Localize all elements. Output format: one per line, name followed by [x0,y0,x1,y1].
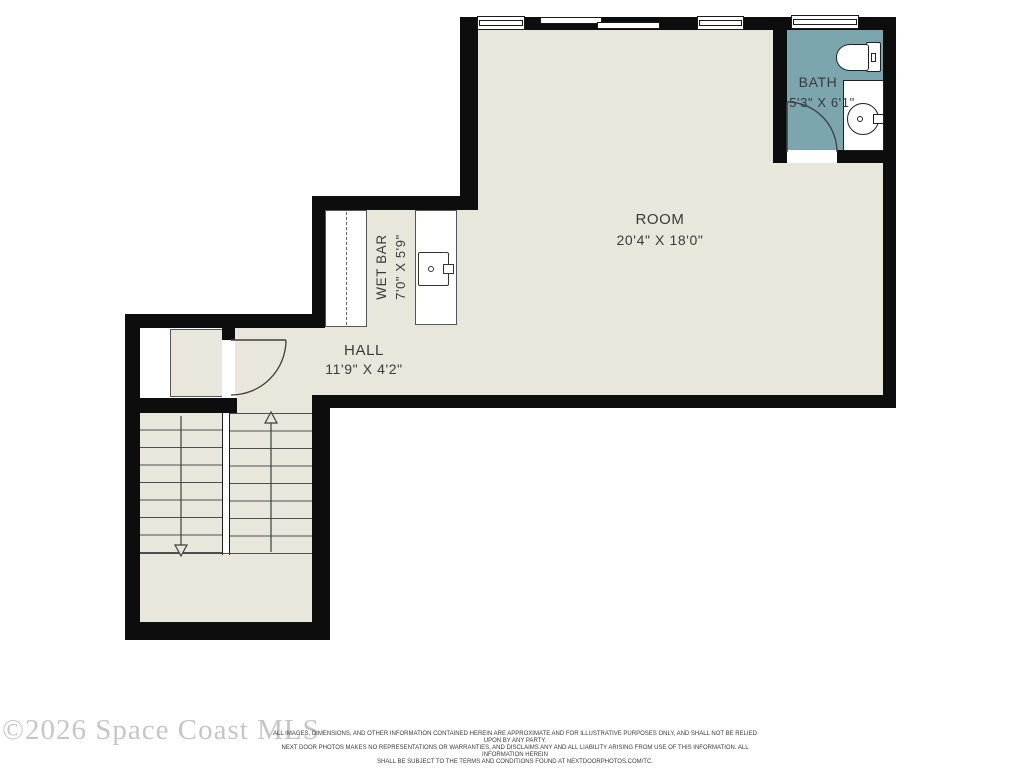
room-dims: 20'4" X 18'0" [560,232,760,248]
wall-bath-bottom [837,150,896,163]
closet-inner [170,329,222,397]
hall-dims: 11'9" X 4'2" [304,361,424,377]
wall-door-jamb-top [222,314,235,340]
wall-hall-bottom [312,395,896,408]
bath-dims: 5'3" X 6'1" [768,95,876,110]
bath-label: BATH [768,74,868,90]
wall-outer-left [125,314,140,640]
disclaimer-line: ALL IMAGES, DIMENSIONS, AND OTHER INFORM… [265,731,765,745]
wet-bar-label-group: WET BAR 7'0" X 5'9" [372,207,410,327]
window-pane [793,19,857,25]
toilet-flush-button [871,53,876,62]
wet-bar-sink-drain [428,266,434,272]
wall-bath-west [773,17,787,163]
stair-landing-edge [140,553,312,554]
wall-room-left [460,17,478,210]
wet-bar-counter-dashed-line [346,212,347,325]
bath-sink-drain [857,116,863,122]
disclaimer-line: NEXT DOOR PHOTOS MAKES NO REPRESENTATION… [265,745,765,759]
room-label: ROOM [560,211,760,228]
disclaimer-line: SHALL BE SUBJECT TO THE TERMS AND CONDIT… [265,759,765,766]
window-2 [697,16,744,30]
wet-bar-label: WET BAR [372,207,391,327]
bath-door-opening [787,150,837,163]
wall-stair-bottom [125,622,330,640]
window-3-bath [791,15,859,29]
wet-bar-dims: 7'0" X 5'9" [391,207,410,327]
window-1 [477,16,525,30]
wet-bar-faucet [443,264,454,274]
hall-stair-strip [237,395,312,413]
window-pane [699,20,742,26]
stair-divider [222,413,230,555]
disclaimer-text: ALL IMAGES, DIMENSIONS, AND OTHER INFORM… [265,731,765,766]
sliding-door-panel-right [597,22,660,29]
wall-room-right [883,17,896,408]
wall-stair-right [312,395,330,640]
bath-faucet [873,114,884,124]
sliding-door-panel-left [540,17,602,24]
stair-flight-down [140,413,222,553]
floor-plan-page: ROOM 20'4" X 18'0" BATH 5'3" X 6'1" WET … [0,0,1024,768]
stair-flight-up [230,413,312,554]
wall-closet-bottom [125,398,237,413]
toilet-bowl [836,44,869,71]
wall-nook-west [312,196,325,328]
window-pane [479,20,523,26]
hall-label: HALL [304,342,424,359]
hall-door-opening [222,340,235,395]
